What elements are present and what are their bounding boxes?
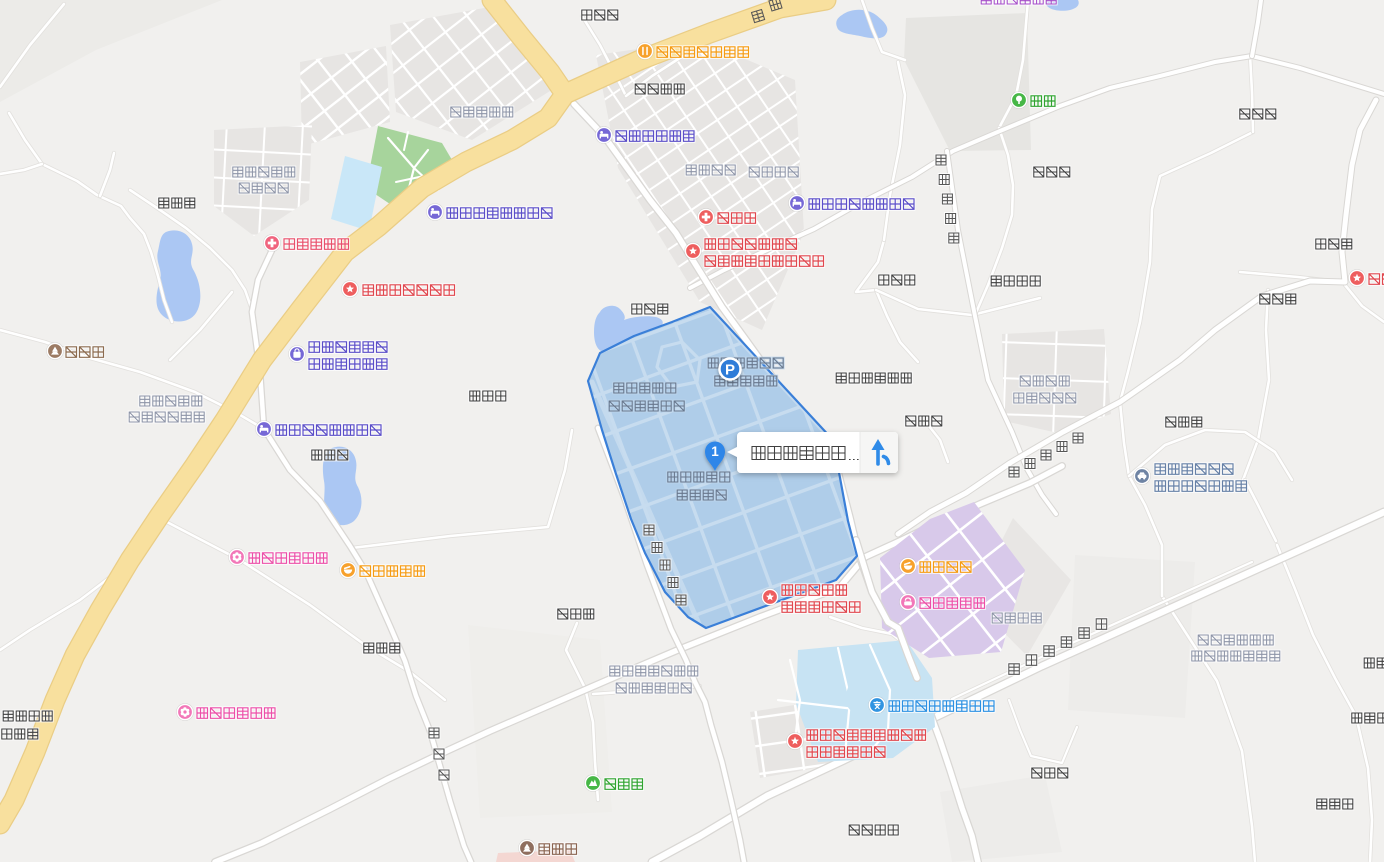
- svg-text:P: P: [725, 362, 735, 379]
- svg-text:1: 1: [711, 444, 719, 459]
